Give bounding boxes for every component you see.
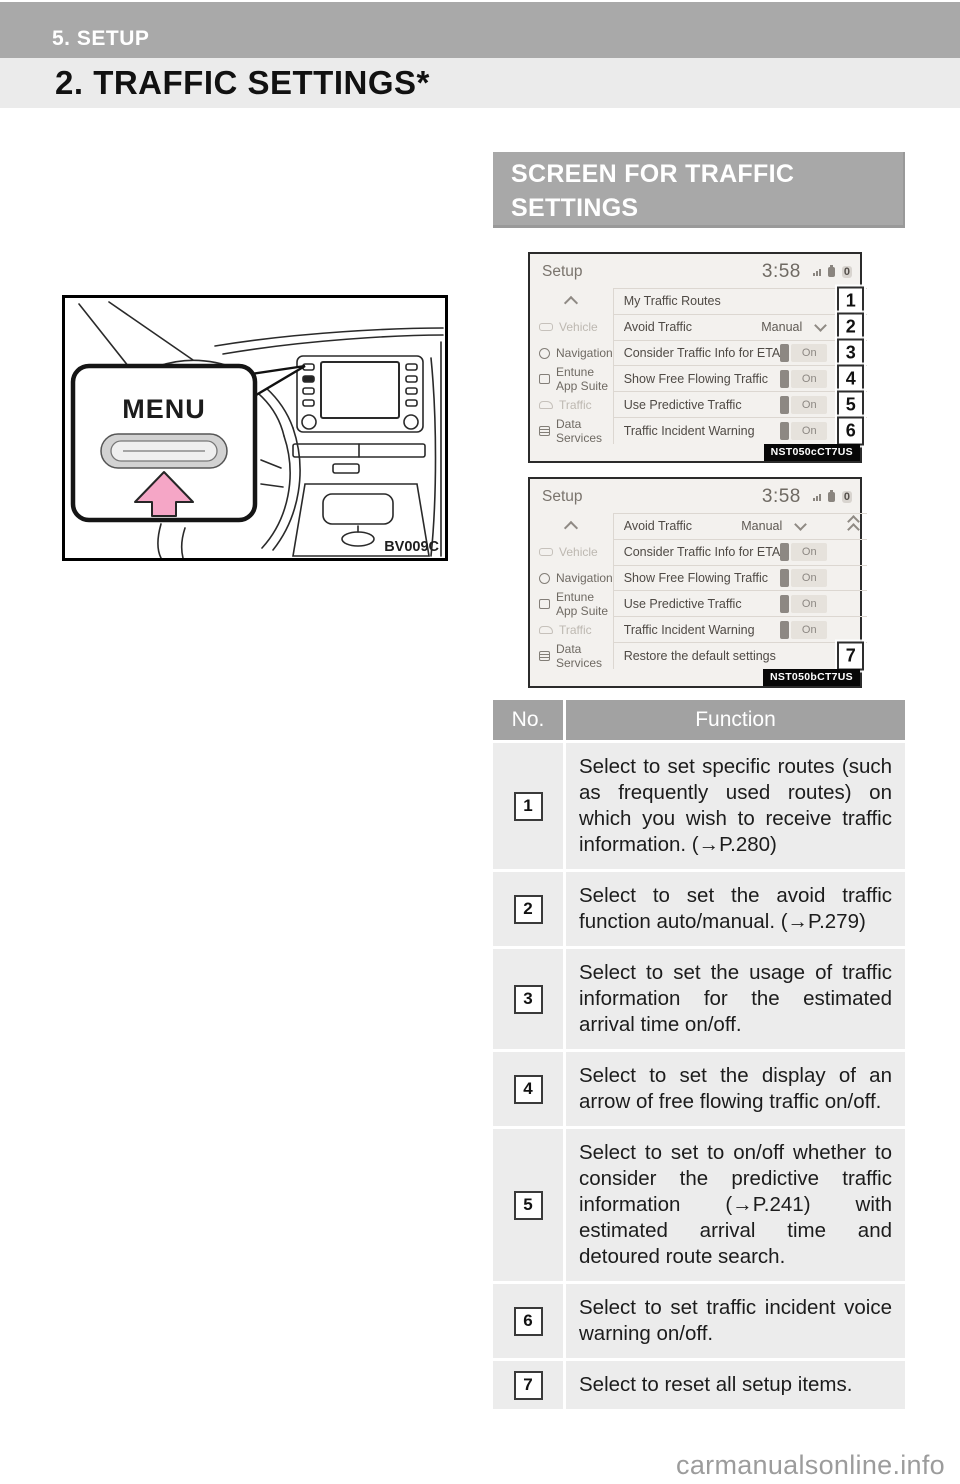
setting-label: Use Predictive Traffic <box>624 398 781 412</box>
toggle-state: On <box>791 396 827 414</box>
sidebar-item-entune[interactable]: Entune App Suite <box>530 591 613 617</box>
setting-label: Avoid Traffic <box>624 519 742 533</box>
sidebar-item-vehicle[interactable]: Vehicle <box>530 314 613 340</box>
setting-label: Show Free Flowing Traffic <box>624 372 781 386</box>
photo-code: NST050bCT7US <box>763 669 860 686</box>
section-heading-line1: SCREEN FOR TRAFFIC <box>511 157 905 191</box>
chapter-label: 5. SETUP <box>52 27 149 51</box>
zero-badge: 0 <box>842 491 852 503</box>
table-row: 4 Select to set the display of an arrow … <box>493 1052 905 1126</box>
callout-3: 3 <box>837 339 864 368</box>
toggle-state: On <box>791 569 827 587</box>
number-badge-7: 7 <box>514 1371 543 1400</box>
toggle-switch[interactable]: On <box>780 422 827 440</box>
dashboard-drawing: MENU BV009C <box>65 298 445 558</box>
table-row: 6 Select to set traffic incident voice w… <box>493 1284 905 1358</box>
number-badge-6: 6 <box>514 1307 543 1336</box>
signal-icon <box>813 494 821 501</box>
sidebar-item-navigation[interactable]: Navigation <box>530 340 613 366</box>
manual-page: 5. SETUP 2. TRAFFIC SETTINGS* SCREEN FOR… <box>0 0 960 1484</box>
sidebar-item-traffic[interactable]: Traffic <box>530 617 613 643</box>
sidebar-item-data-services[interactable]: Data Services <box>530 643 613 669</box>
watermark: carmanualsonline.info <box>676 1450 945 1481</box>
setting-label: Show Free Flowing Traffic <box>624 571 781 585</box>
row-show-free-flowing[interactable]: Show Free Flowing Traffic On <box>614 566 868 592</box>
toggle-switch[interactable]: On <box>780 595 827 613</box>
navigation-icon <box>539 348 550 359</box>
toggle-knob <box>780 543 789 561</box>
toggle-switch[interactable]: On <box>780 344 827 362</box>
left-knob <box>302 415 316 429</box>
function-text: Select to set the avoid traffic function… <box>566 872 905 946</box>
sidebar-item-navigation[interactable]: Navigation <box>530 565 613 591</box>
function-text: Select to set the usage of traffic infor… <box>566 949 905 1049</box>
screen1-header: Setup 3:58 0 <box>530 254 860 288</box>
row-use-predictive[interactable]: Use Predictive Traffic On 5 <box>614 392 868 418</box>
chapter-band: 5. SETUP <box>0 2 960 58</box>
clock: 3:58 <box>762 261 801 283</box>
menu-hard-button <box>303 376 314 382</box>
status-icons: 0 <box>813 491 852 503</box>
row-avoid-traffic[interactable]: Avoid Traffic Manual <box>614 514 868 540</box>
app-suite-icon <box>539 599 550 609</box>
setting-label: Traffic Incident Warning <box>624 424 781 438</box>
setting-label: My Traffic Routes <box>624 294 832 308</box>
setting-label: Restore the default settings <box>624 649 832 663</box>
toggle-knob <box>780 370 789 388</box>
table-row: 3 Select to set the usage of traffic inf… <box>493 949 905 1049</box>
traffic-icon <box>539 626 553 634</box>
dropdown-value: Manual <box>741 519 782 533</box>
sidebar-item-label: Traffic <box>559 398 592 412</box>
toggle-state: On <box>791 595 827 613</box>
sidebar-item-traffic[interactable]: Traffic <box>530 392 613 418</box>
status-icons: 0 <box>813 266 852 278</box>
chevron-up-icon <box>564 521 578 535</box>
function-table: No. Function 1 Select to set specific ro… <box>493 700 905 1409</box>
row-show-free-flowing[interactable]: Show Free Flowing Traffic On 4 <box>614 366 868 392</box>
row-my-traffic-routes[interactable]: My Traffic Routes 1 <box>614 289 868 315</box>
function-text: Select to reset all setup items. <box>566 1361 905 1409</box>
battery-icon <box>828 492 835 502</box>
row-use-predictive[interactable]: Use Predictive Traffic On <box>614 591 868 617</box>
toggle-state: On <box>791 370 827 388</box>
screen2-sidebar: Vehicle Navigation Entune App Suite Traf… <box>530 513 614 669</box>
sidebar-scroll-up[interactable] <box>530 288 613 314</box>
callout-2: 2 <box>837 313 864 342</box>
number-badge-5: 5 <box>514 1191 543 1220</box>
chevron-up-icon <box>564 296 578 310</box>
setup-screen-2: Setup 3:58 0 Vehicle Navigation Entune A… <box>528 477 862 688</box>
setup-screen-1: Setup 3:58 0 Vehicle Navigation Entune A… <box>528 252 862 463</box>
toggle-switch[interactable]: On <box>780 396 827 414</box>
double-chevron-up-icon[interactable] <box>849 518 858 534</box>
clock: 3:58 <box>762 486 801 508</box>
sidebar-item-label: Vehicle <box>559 320 598 334</box>
header-function: Function <box>566 700 905 740</box>
function-text: Select to set the display of an arrow of… <box>566 1052 905 1126</box>
toggle-switch[interactable]: On <box>780 621 827 639</box>
data-services-icon <box>539 651 550 661</box>
car-icon <box>539 323 553 331</box>
callout-5: 5 <box>837 390 864 419</box>
row-traffic-incident[interactable]: Traffic Incident Warning On <box>614 617 868 643</box>
screen2-header: Setup 3:58 0 <box>530 479 860 513</box>
toggle-state: On <box>791 543 827 561</box>
sidebar-item-vehicle[interactable]: Vehicle <box>530 539 613 565</box>
toggle-switch[interactable]: On <box>780 543 827 561</box>
battery-icon <box>828 267 835 277</box>
right-knob <box>404 415 418 429</box>
function-text: Select to set to on/off whether to consi… <box>566 1129 905 1281</box>
table-row: 2 Select to set the avoid traffic functi… <box>493 872 905 946</box>
screen1-settings-list: My Traffic Routes 1 Avoid Traffic Manual… <box>614 288 868 444</box>
toggle-switch[interactable]: On <box>780 370 827 388</box>
row-avoid-traffic[interactable]: Avoid Traffic Manual 2 <box>614 315 868 341</box>
shifter <box>342 532 374 546</box>
number-badge-4: 4 <box>514 1075 543 1104</box>
sidebar-item-label: Entune App Suite <box>556 365 613 393</box>
app-suite-icon <box>539 374 550 384</box>
zero-badge: 0 <box>842 266 852 278</box>
display-screen <box>321 362 399 418</box>
chevron-down-icon[interactable] <box>794 519 807 532</box>
toggle-knob <box>780 569 789 587</box>
sidebar-item-label: Vehicle <box>559 545 598 559</box>
table-row: 7 Select to reset all setup items. <box>493 1361 905 1409</box>
setting-label: Consider Traffic Info for ETA <box>624 346 781 360</box>
sidebar-item-label: Data Services <box>556 417 613 445</box>
callout-4: 4 <box>837 364 864 393</box>
screen2-settings-list: Avoid Traffic Manual Consider Traffic In… <box>614 513 868 669</box>
number-badge-3: 3 <box>514 985 543 1014</box>
title-band: 2. TRAFFIC SETTINGS* <box>0 58 960 108</box>
data-services-icon <box>539 426 550 436</box>
callout-6: 6 <box>837 417 864 446</box>
toggle-state: On <box>791 344 827 362</box>
setting-label: Use Predictive Traffic <box>624 597 781 611</box>
traffic-icon <box>539 401 553 409</box>
toggle-state: On <box>791 621 827 639</box>
screen-title: Setup <box>542 488 583 506</box>
figure-code: BV009C <box>384 539 439 555</box>
sidebar-item-label: Traffic <box>559 623 592 637</box>
screen-title: Setup <box>542 263 583 281</box>
table-row: 5 Select to set to on/off whether to con… <box>493 1129 905 1281</box>
car-icon <box>539 548 553 556</box>
sidebar-item-entune[interactable]: Entune App Suite <box>530 366 613 392</box>
sidebar-item-label: Navigation <box>556 571 613 585</box>
setting-label: Avoid Traffic <box>624 320 762 334</box>
toggle-knob <box>780 595 789 613</box>
sidebar-item-label: Entune App Suite <box>556 590 613 618</box>
sidebar-item-label: Data Services <box>556 642 613 670</box>
dropdown-value: Manual <box>761 320 802 334</box>
function-text: Select to set traffic incident voice war… <box>566 1284 905 1358</box>
toggle-knob <box>780 396 789 414</box>
setting-label: Consider Traffic Info for ETA <box>624 545 781 559</box>
windshield-line <box>109 302 193 360</box>
table-header: No. Function <box>493 700 905 740</box>
number-badge-1: 1 <box>514 792 543 821</box>
row-traffic-incident[interactable]: Traffic Incident Warning On 6 <box>614 418 868 444</box>
row-consider-traffic-eta[interactable]: Consider Traffic Info for ETA On 3 <box>614 341 868 367</box>
sidebar-item-data-services[interactable]: Data Services <box>530 418 613 444</box>
dashboard-illustration: MENU BV009C <box>62 295 448 561</box>
screen1-sidebar: Vehicle Navigation Entune App Suite Traf… <box>530 288 614 444</box>
function-text: Select to set specific routes (such as f… <box>566 743 905 869</box>
section-heading-line2: SETTINGS <box>511 191 905 225</box>
callout-7: 7 <box>837 642 864 671</box>
photo-code: NST050cCT7US <box>764 444 860 461</box>
toggle-state: On <box>791 422 827 440</box>
navigation-icon <box>539 573 550 584</box>
callout-1: 1 <box>837 287 864 316</box>
row-restore-defaults[interactable]: Restore the default settings 7 <box>614 643 868 669</box>
section-heading: SCREEN FOR TRAFFIC SETTINGS <box>493 152 905 228</box>
menu-button-label: MENU <box>122 394 206 424</box>
toggle-knob <box>780 422 789 440</box>
toggle-knob <box>780 621 789 639</box>
toggle-knob <box>780 344 789 362</box>
sidebar-item-label: Navigation <box>556 346 613 360</box>
signal-icon <box>813 269 821 276</box>
page-title: 2. TRAFFIC SETTINGS* <box>55 64 430 102</box>
chevron-down-icon[interactable] <box>814 319 827 332</box>
row-consider-traffic-eta[interactable]: Consider Traffic Info for ETA On <box>614 540 868 566</box>
header-no: No. <box>493 700 563 740</box>
setting-label: Traffic Incident Warning <box>624 623 781 637</box>
table-row: 1 Select to set specific routes (such as… <box>493 743 905 869</box>
toggle-switch[interactable]: On <box>780 569 827 587</box>
number-badge-2: 2 <box>514 895 543 924</box>
sidebar-scroll-up[interactable] <box>530 513 613 539</box>
